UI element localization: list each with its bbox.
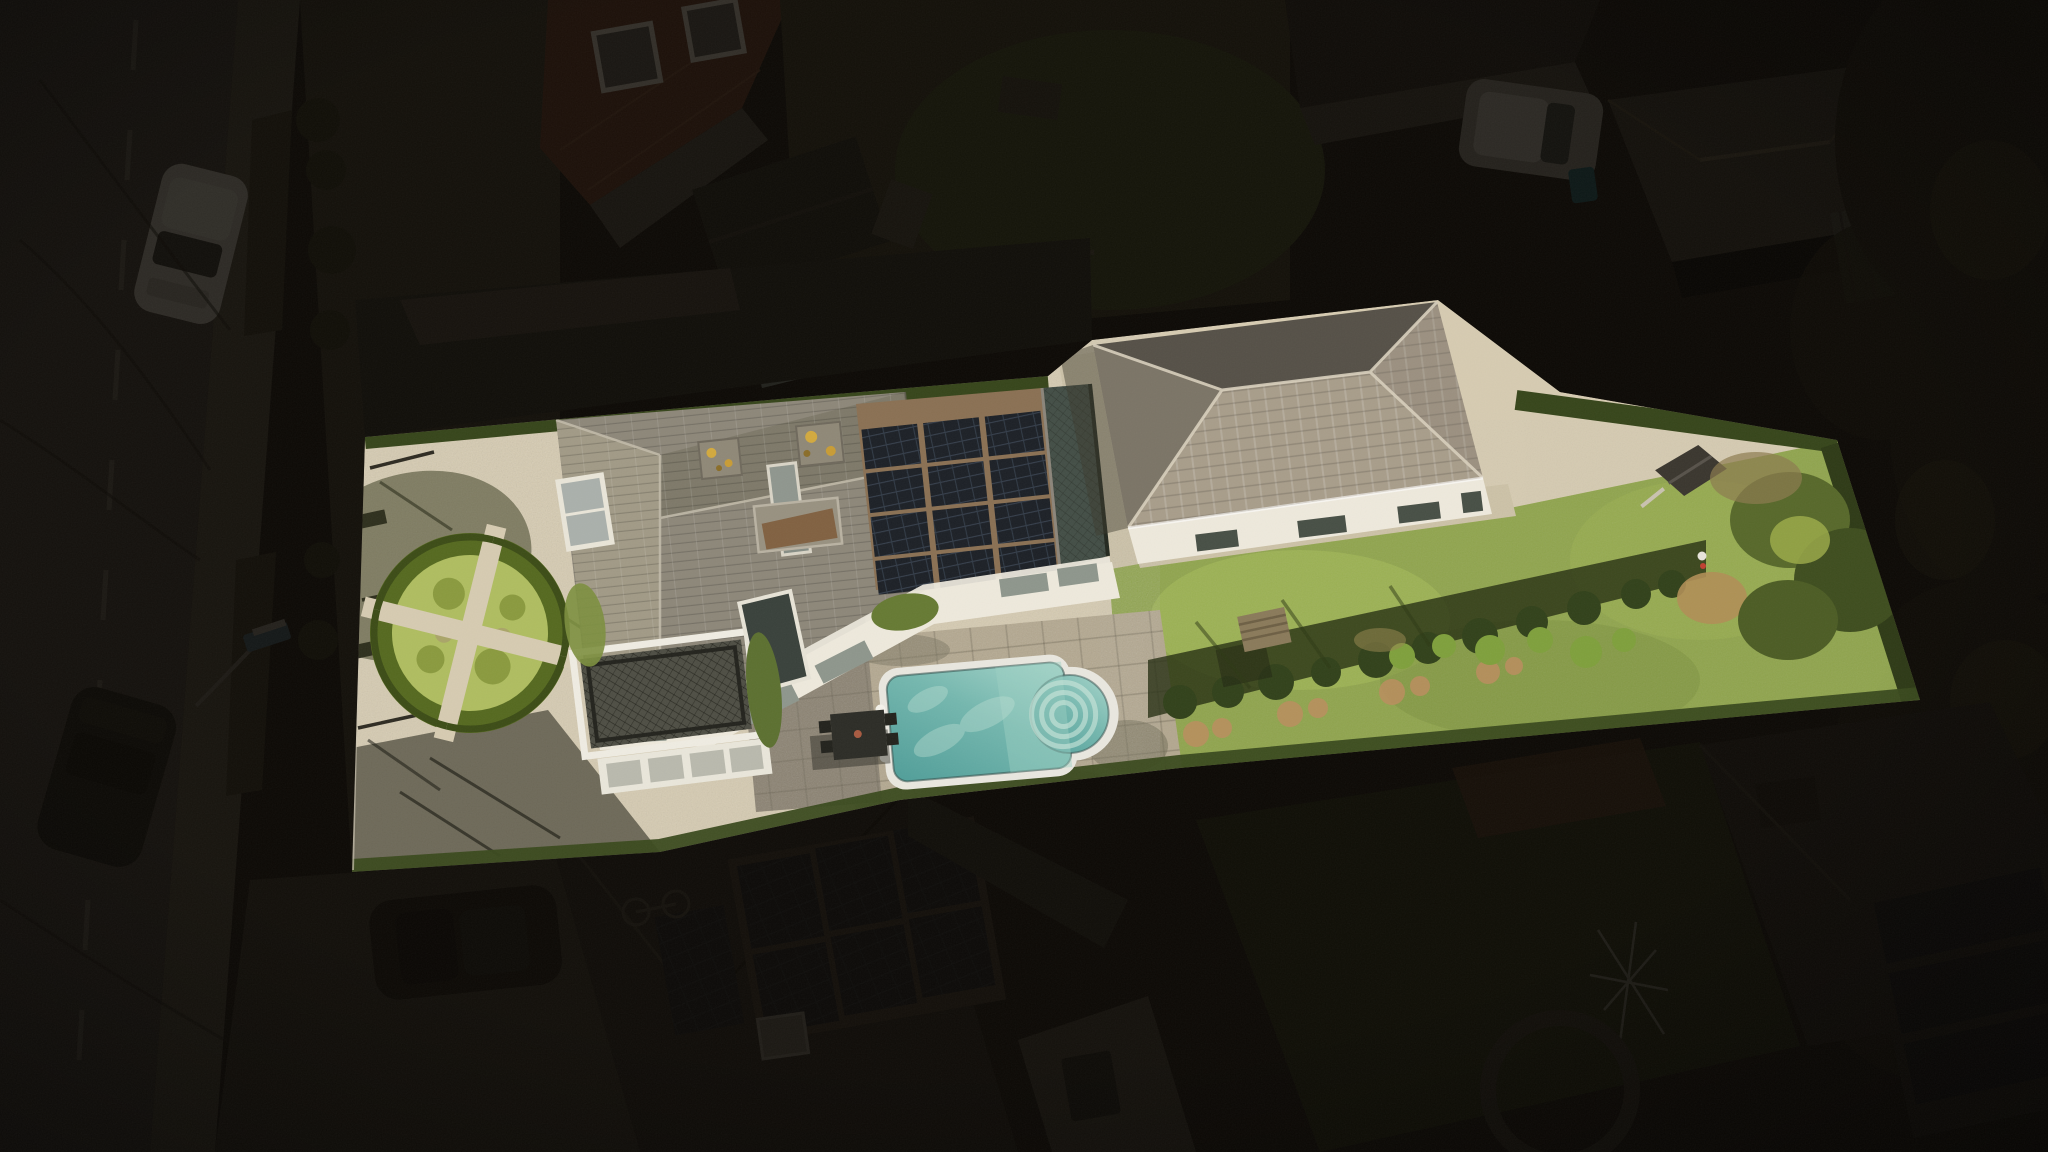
aerial-photo (0, 0, 2048, 1152)
film-grain (0, 0, 2048, 1152)
